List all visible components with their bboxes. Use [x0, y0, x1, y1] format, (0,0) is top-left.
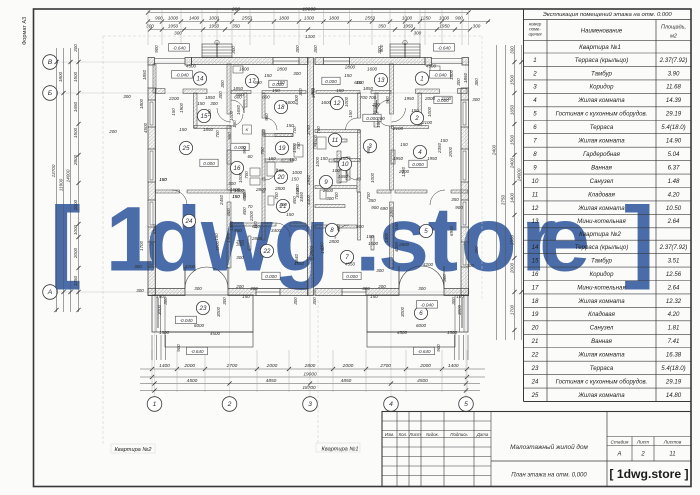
svg-text:1850: 1850 [363, 86, 374, 91]
svg-text:Ванная: Ванная [591, 164, 613, 171]
svg-text:150: 150 [440, 138, 448, 143]
svg-text:11.68: 11.68 [666, 84, 681, 91]
svg-text:300: 300 [414, 31, 422, 36]
svg-text:300: 300 [210, 101, 218, 106]
svg-text:1: 1 [153, 401, 157, 408]
svg-text:4500: 4500 [397, 330, 408, 335]
svg-text:2800: 2800 [322, 188, 334, 193]
svg-text:1000: 1000 [427, 106, 432, 117]
svg-text:4200: 4200 [423, 262, 434, 267]
svg-text:1850: 1850 [463, 72, 468, 83]
svg-text:3000: 3000 [457, 304, 462, 315]
svg-text:900: 900 [234, 228, 242, 233]
svg-text:6000: 6000 [416, 323, 427, 328]
svg-text:6.37: 6.37 [668, 164, 680, 171]
svg-text:300: 300 [136, 288, 144, 293]
svg-text:Квартира №1: Квартира №1 [321, 446, 358, 452]
svg-text:6: 6 [419, 310, 423, 317]
svg-text:150: 150 [277, 80, 285, 85]
svg-text:-0.640: -0.640 [417, 349, 430, 354]
svg-text:1650: 1650 [73, 101, 78, 112]
svg-text:Терраса (крыльцо): Терраса (крыльцо) [575, 57, 629, 64]
svg-text:2000: 2000 [342, 363, 354, 369]
svg-text:150: 150 [348, 110, 353, 118]
svg-text:11: 11 [669, 452, 675, 458]
svg-text:200: 200 [108, 129, 117, 134]
svg-text:300: 300 [313, 45, 318, 53]
svg-text:4500: 4500 [210, 331, 221, 336]
svg-text:150: 150 [394, 222, 399, 230]
svg-text:300: 300 [279, 202, 287, 207]
svg-text:300: 300 [222, 297, 227, 305]
svg-text:№док.: №док. [426, 432, 439, 437]
svg-text:6000: 6000 [194, 323, 205, 328]
svg-text:2100: 2100 [440, 96, 452, 101]
svg-text:3.51: 3.51 [668, 257, 680, 264]
svg-text:100: 100 [332, 168, 340, 173]
svg-text:700: 700 [366, 192, 371, 200]
svg-text:1950: 1950 [393, 156, 404, 161]
svg-text:10: 10 [342, 161, 349, 168]
svg-text:Листов: Листов [663, 439, 682, 445]
svg-text:2000: 2000 [266, 363, 278, 369]
svg-text:Ванная: Ванная [591, 338, 613, 345]
svg-text:2800: 2800 [304, 363, 316, 369]
svg-text:Санузел: Санузел [590, 325, 614, 332]
svg-text:14000: 14000 [517, 168, 522, 181]
svg-text:0.000: 0.000 [265, 274, 277, 279]
svg-text:300: 300 [310, 88, 315, 96]
svg-text:700: 700 [292, 126, 297, 134]
svg-text:600: 600 [236, 92, 244, 97]
svg-text:2700: 2700 [379, 363, 391, 369]
svg-text:150: 150 [370, 294, 378, 299]
svg-text:1400: 1400 [384, 232, 389, 243]
svg-text:950: 950 [242, 146, 247, 154]
svg-text:1950: 1950 [403, 23, 414, 28]
svg-text:1950: 1950 [404, 96, 415, 101]
svg-text:300: 300 [293, 297, 298, 305]
svg-text:Лист: Лист [636, 439, 649, 445]
svg-text:150: 150 [197, 101, 205, 106]
svg-text:2800: 2800 [398, 242, 410, 247]
svg-text:800: 800 [242, 207, 247, 215]
svg-text:Жилая комната: Жилая комната [577, 392, 625, 399]
svg-text:2100: 2100 [421, 120, 433, 125]
svg-text:19: 19 [279, 145, 286, 152]
svg-text:Жилая комната: Жилая комната [577, 298, 625, 305]
svg-text:1850: 1850 [205, 95, 216, 100]
svg-text:1650: 1650 [372, 104, 377, 115]
svg-text:Малоэтажный жилой дом: Малоэтажный жилой дом [510, 443, 588, 451]
svg-text:100: 100 [207, 109, 212, 117]
svg-text:o: o [461, 189, 517, 291]
svg-text:Терраса (крыльцо): Терраса (крыльцо) [575, 244, 629, 251]
svg-text:Площадь,: Площадь, [661, 25, 686, 31]
svg-text:21: 21 [531, 338, 539, 345]
svg-text:1.81: 1.81 [668, 325, 680, 332]
svg-text:29.19: 29.19 [665, 111, 682, 118]
svg-text:18700: 18700 [302, 385, 316, 391]
svg-text:4500: 4500 [186, 64, 197, 69]
svg-text:Гостиная с кухонным оборудов.: Гостиная с кухонным оборудов. [556, 378, 648, 385]
svg-text:2000: 2000 [73, 247, 78, 259]
svg-text:150: 150 [456, 294, 464, 299]
svg-text:4550: 4550 [345, 262, 356, 267]
svg-text:20: 20 [531, 325, 539, 332]
svg-text:29.19: 29.19 [665, 378, 682, 385]
svg-text:1000: 1000 [168, 15, 179, 20]
svg-text:2800: 2800 [251, 236, 263, 241]
svg-text:10: 10 [532, 178, 539, 185]
svg-text:4: 4 [389, 401, 393, 408]
svg-text:1500: 1500 [159, 330, 170, 335]
svg-text:4500: 4500 [426, 64, 437, 69]
svg-text:Жилая комната: Жилая комната [577, 97, 625, 104]
svg-text:3: 3 [308, 401, 312, 408]
svg-text:150: 150 [286, 212, 294, 217]
svg-text:150: 150 [214, 233, 219, 241]
svg-text:Квартира №2: Квартира №2 [579, 231, 621, 238]
svg-text:11: 11 [332, 137, 338, 144]
svg-text:4: 4 [418, 149, 422, 156]
svg-text:4850: 4850 [341, 378, 352, 384]
svg-text:1300: 1300 [305, 34, 316, 39]
svg-text:10.50: 10.50 [666, 205, 682, 212]
svg-text:1400: 1400 [189, 15, 200, 20]
svg-text:690: 690 [380, 206, 388, 211]
svg-text:300: 300 [250, 286, 258, 291]
svg-text:1850: 1850 [233, 86, 244, 91]
svg-text:-0.640: -0.640 [172, 45, 185, 50]
svg-text:2000: 2000 [398, 169, 410, 174]
svg-text:Подпись: Подпись [450, 432, 468, 437]
svg-text:1850: 1850 [142, 69, 147, 80]
svg-text:300: 300 [472, 97, 480, 102]
svg-text:150: 150 [179, 127, 187, 132]
svg-text:150: 150 [291, 177, 299, 182]
svg-text:19000: 19000 [302, 7, 316, 13]
svg-text:2800: 2800 [328, 239, 340, 244]
svg-text:600: 600 [254, 80, 262, 85]
svg-text:25: 25 [182, 145, 190, 152]
svg-text:2800: 2800 [276, 67, 288, 72]
svg-text:3000: 3000 [400, 306, 405, 317]
svg-text:300: 300 [231, 46, 236, 54]
svg-text:2000: 2000 [510, 262, 515, 274]
svg-text:13: 13 [532, 218, 539, 225]
svg-text:70: 70 [247, 204, 253, 209]
svg-text:700: 700 [242, 192, 247, 200]
svg-text:900: 900 [455, 205, 463, 210]
svg-text:0.000: 0.000 [412, 162, 424, 167]
svg-text:700: 700 [316, 126, 321, 134]
svg-text:1500: 1500 [510, 134, 515, 145]
svg-text:150: 150 [400, 142, 408, 147]
svg-text:1000: 1000 [292, 170, 303, 175]
svg-text:0.000: 0.000 [325, 79, 337, 84]
svg-text:700: 700 [334, 192, 339, 200]
svg-text:300: 300 [442, 274, 447, 282]
svg-text:150: 150 [320, 156, 328, 161]
svg-text:1650: 1650 [338, 174, 349, 179]
svg-text:11900: 11900 [59, 178, 64, 191]
svg-text:300: 300 [194, 286, 202, 291]
svg-text:1600: 1600 [230, 187, 241, 192]
svg-text:1900: 1900 [179, 102, 184, 113]
svg-text:K: K [246, 127, 249, 132]
svg-text:1600: 1600 [321, 100, 332, 105]
svg-text:950: 950 [227, 132, 232, 140]
svg-text:1650: 1650 [236, 104, 241, 115]
svg-text:950: 950 [366, 146, 371, 154]
svg-text:12: 12 [334, 100, 341, 107]
svg-text:200: 200 [377, 284, 386, 289]
svg-text:Наименование: Наименование [581, 29, 623, 35]
svg-text:12.32: 12.32 [666, 298, 682, 305]
svg-text:1650: 1650 [510, 104, 515, 115]
svg-text:Изм.: Изм. [385, 432, 394, 437]
svg-text:2350: 2350 [437, 142, 442, 154]
svg-text:150: 150 [171, 108, 176, 116]
svg-text:900: 900 [436, 344, 441, 352]
svg-text:1500: 1500 [510, 74, 515, 85]
svg-text:300: 300 [362, 286, 370, 291]
svg-text:1600: 1600 [367, 67, 378, 72]
svg-text:14: 14 [532, 244, 539, 251]
svg-text:300: 300 [220, 80, 225, 88]
svg-text:2000: 2000 [73, 199, 78, 211]
svg-text:5: 5 [464, 401, 468, 408]
svg-text:2000: 2000 [424, 96, 436, 101]
svg-text:1250: 1250 [73, 275, 78, 286]
svg-text:4400: 4400 [306, 194, 311, 205]
svg-text:14.39: 14.39 [666, 97, 682, 104]
svg-text:1500: 1500 [73, 127, 78, 138]
svg-text:16: 16 [532, 271, 539, 278]
svg-text:13700: 13700 [51, 164, 56, 177]
svg-text:300: 300 [312, 297, 317, 305]
svg-text:12.56: 12.56 [666, 271, 682, 278]
svg-text:16.38: 16.38 [666, 352, 682, 359]
svg-text:Гардеробная: Гардеробная [583, 151, 621, 158]
svg-text:600: 600 [354, 80, 362, 85]
svg-text:5.04: 5.04 [668, 151, 680, 158]
svg-text:Санузел: Санузел [590, 178, 614, 185]
svg-text:300: 300 [236, 255, 244, 260]
svg-text:1600: 1600 [239, 67, 250, 72]
svg-text:150: 150 [320, 246, 325, 254]
svg-text:-0.640: -0.640 [437, 45, 450, 50]
svg-text:1800: 1800 [139, 98, 144, 109]
svg-text:2350: 2350 [389, 206, 394, 218]
svg-text:Мини-котельная: Мини-котельная [577, 218, 626, 225]
svg-text:300: 300 [456, 78, 461, 86]
svg-text:1: 1 [533, 57, 536, 64]
svg-text:750: 750 [312, 142, 317, 150]
svg-text:350: 350 [232, 23, 240, 28]
svg-text:300: 300 [474, 78, 479, 86]
svg-text:0.000: 0.000 [203, 161, 215, 166]
svg-text:1000: 1000 [229, 110, 234, 121]
svg-text:Стадия: Стадия [611, 439, 629, 445]
svg-text:300: 300 [418, 286, 426, 291]
svg-text:1: 1 [420, 76, 423, 83]
svg-text:1000: 1000 [238, 172, 243, 183]
svg-text:20: 20 [277, 174, 285, 181]
svg-text:150: 150 [344, 73, 352, 78]
svg-text:5.4(18.0): 5.4(18.0) [661, 124, 685, 131]
svg-text:300: 300 [466, 263, 474, 268]
svg-text:4200: 4200 [215, 240, 220, 251]
svg-text:-0.040: -0.040 [433, 72, 446, 77]
svg-text:2000: 2000 [448, 146, 453, 158]
svg-text:1600: 1600 [285, 100, 296, 105]
svg-text:13: 13 [378, 77, 385, 84]
svg-text:900: 900 [379, 44, 384, 52]
svg-text:600: 600 [262, 95, 270, 100]
svg-text:Квартира №1: Квартира №1 [579, 44, 621, 51]
svg-text:2.37(7.92): 2.37(7.92) [659, 57, 688, 64]
svg-text:15: 15 [532, 257, 539, 264]
svg-text:150: 150 [289, 157, 297, 162]
svg-text:1400: 1400 [226, 232, 231, 243]
svg-text:2400: 2400 [492, 144, 497, 156]
svg-text:Коридор: Коридор [590, 84, 615, 91]
svg-text:1950: 1950 [427, 156, 438, 161]
svg-text:2.64: 2.64 [667, 284, 680, 291]
svg-text:11: 11 [532, 191, 538, 198]
svg-text:1300: 1300 [304, 15, 315, 20]
svg-text:790: 790 [260, 147, 265, 155]
svg-text:6950: 6950 [152, 223, 157, 234]
svg-text:3750: 3750 [501, 194, 506, 205]
svg-text:Лист: Лист [408, 432, 421, 437]
svg-text:1800: 1800 [279, 15, 290, 20]
svg-text:1800: 1800 [449, 69, 454, 80]
svg-text:700: 700 [215, 130, 220, 138]
svg-text:14: 14 [197, 76, 204, 83]
svg-text:2800: 2800 [344, 65, 356, 70]
svg-text:300: 300 [146, 23, 154, 28]
svg-text:9: 9 [324, 179, 328, 186]
svg-text:В: В [48, 59, 53, 66]
svg-text:300: 300 [218, 91, 223, 99]
svg-text:-0.040: -0.040 [175, 72, 188, 77]
svg-text:-0.640: -0.640 [190, 349, 203, 354]
svg-text:300: 300 [376, 268, 384, 273]
svg-text:8: 8 [330, 227, 334, 234]
svg-text:0.000: 0.000 [346, 274, 358, 279]
svg-text:2950: 2950 [306, 174, 311, 186]
svg-text:150: 150 [411, 108, 419, 113]
svg-text:19000: 19000 [303, 371, 317, 377]
svg-text:Коридор: Коридор [590, 271, 615, 278]
svg-text:Терраса: Терраса [590, 365, 614, 372]
svg-text:3000: 3000 [216, 306, 221, 317]
svg-text:4500: 4500 [187, 378, 198, 384]
svg-text:24: 24 [531, 378, 539, 385]
svg-text:300: 300 [293, 71, 301, 76]
svg-text:700: 700 [274, 192, 279, 200]
svg-text:1700: 1700 [510, 304, 515, 315]
svg-text:1400: 1400 [159, 363, 170, 369]
svg-text:150: 150 [336, 88, 344, 93]
svg-text:150: 150 [232, 120, 237, 128]
svg-text:3400: 3400 [271, 228, 282, 233]
svg-text:2: 2 [227, 401, 232, 408]
svg-text:2: 2 [414, 115, 419, 122]
svg-text:600: 600 [252, 224, 260, 229]
svg-text:Экспликация помещений этажа на: Экспликация помещений этажа на отм. 0.00… [543, 11, 673, 18]
svg-text:4500: 4500 [417, 378, 428, 384]
svg-text:18: 18 [532, 298, 539, 305]
svg-text:900: 900 [385, 96, 390, 104]
svg-text:2800: 2800 [309, 245, 314, 257]
svg-text:300: 300 [473, 23, 481, 28]
svg-text:5.4(18.0): 5.4(18.0) [661, 365, 685, 372]
svg-text:150: 150 [264, 73, 272, 78]
svg-text:750: 750 [296, 142, 301, 150]
svg-text:150: 150 [366, 234, 374, 239]
svg-text:19: 19 [532, 311, 539, 318]
svg-text:7: 7 [345, 254, 349, 261]
svg-text:150: 150 [376, 120, 381, 128]
svg-text:350: 350 [451, 197, 459, 202]
svg-text:300: 300 [474, 246, 479, 254]
svg-text:2800: 2800 [274, 186, 286, 191]
svg-text:150: 150 [340, 156, 348, 161]
svg-text:2000: 2000 [183, 363, 195, 369]
svg-text:900: 900 [154, 45, 159, 53]
svg-text:880: 880 [261, 129, 266, 137]
svg-text:150: 150 [242, 294, 250, 299]
svg-text:1950: 1950 [439, 23, 450, 28]
svg-text:Жилая комната: Жилая комната [577, 138, 625, 145]
svg-text:1000: 1000 [344, 96, 349, 107]
svg-text:1500: 1500 [447, 330, 458, 335]
svg-text:-0.040: -0.040 [420, 302, 433, 307]
svg-text:Кладовая: Кладовая [588, 191, 616, 198]
svg-text:100: 100 [276, 168, 284, 173]
svg-text:22: 22 [531, 352, 539, 359]
svg-text:16: 16 [234, 165, 241, 172]
svg-text:12: 12 [532, 205, 539, 212]
svg-text:Дата: Дата [476, 432, 489, 437]
svg-text:2700: 2700 [226, 363, 238, 369]
svg-text:4850: 4850 [266, 378, 277, 384]
svg-text:1000: 1000 [370, 172, 375, 183]
svg-text:450: 450 [336, 224, 341, 232]
svg-text:150: 150 [268, 156, 276, 161]
svg-text:2.37(7.92): 2.37(7.92) [659, 244, 688, 251]
svg-text:350: 350 [378, 23, 386, 28]
svg-text:А: А [616, 452, 621, 458]
svg-text:Квартира №2: Квартира №2 [114, 447, 152, 453]
svg-text:Б: Б [48, 90, 53, 97]
svg-text:1400: 1400 [510, 192, 515, 203]
svg-text:4.20: 4.20 [668, 311, 680, 318]
svg-text:2200: 2200 [168, 96, 180, 101]
svg-text:6950: 6950 [449, 225, 454, 236]
svg-text:-0.040: -0.040 [179, 318, 192, 323]
svg-text:960: 960 [264, 113, 269, 121]
svg-text:Тамбур: Тамбур [591, 257, 612, 264]
svg-text:24: 24 [185, 218, 193, 225]
svg-text:2200: 2200 [249, 210, 254, 222]
svg-text:2550: 2550 [241, 15, 253, 20]
svg-text:300: 300 [123, 94, 131, 99]
